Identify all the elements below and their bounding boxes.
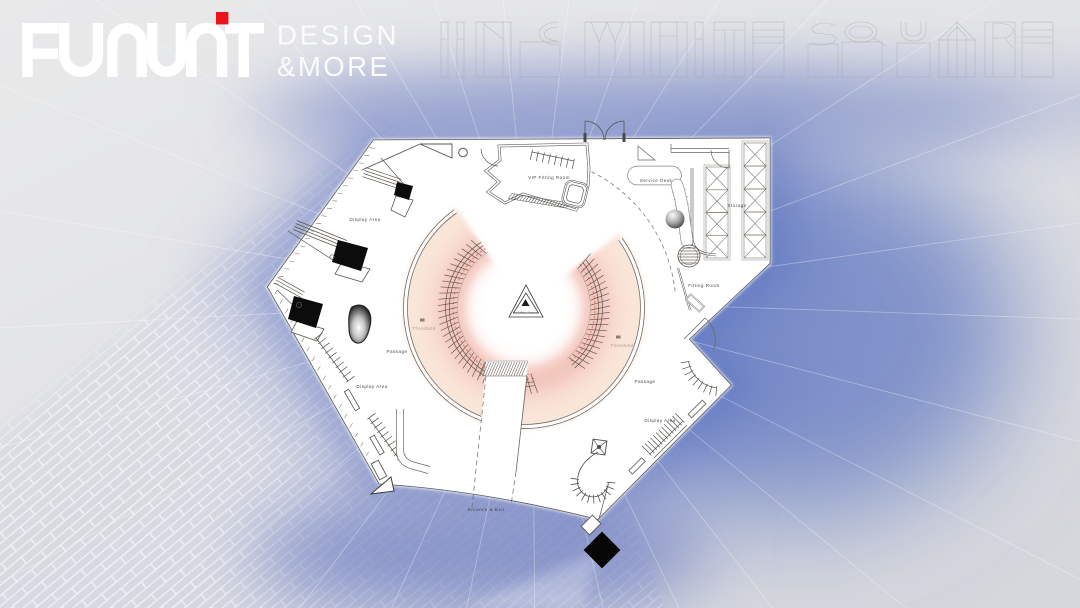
svg-text:DESIGN: DESIGN: [277, 20, 399, 51]
svg-text:Storage: Storage: [727, 203, 746, 208]
svg-text:Service Desk: Service Desk: [640, 178, 673, 183]
svg-text:Enrance & Exit: Enrance & Exit: [468, 507, 505, 512]
svg-text:Passage: Passage: [386, 349, 407, 354]
svg-text:Threshold: Threshold: [412, 326, 435, 331]
svg-text:Threshold: Threshold: [610, 343, 633, 348]
svg-text:VIP Fitting Room: VIP Fitting Room: [528, 175, 570, 180]
svg-text:Inc White Square: Inc White Square: [513, 311, 539, 315]
svg-text:&MORE: &MORE: [277, 51, 390, 82]
svg-text:Display Area: Display Area: [356, 384, 387, 389]
svg-text:Fitting Room: Fitting Room: [688, 283, 719, 288]
svg-text:Display Area: Display Area: [349, 217, 380, 222]
svg-text:Passage: Passage: [634, 379, 655, 384]
svg-text:Display Area: Display Area: [644, 418, 675, 423]
